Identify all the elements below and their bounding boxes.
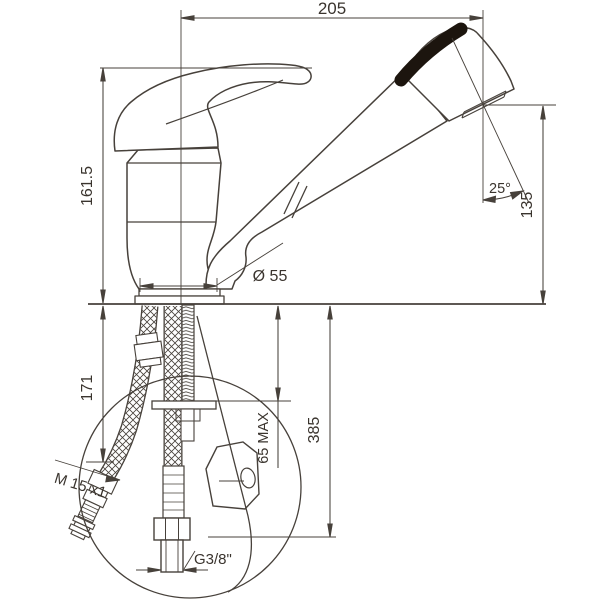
dim-hose-drop-label: 385 [306, 417, 323, 444]
faucet-body-group [114, 28, 514, 304]
dim-spray-height-label: 135 [519, 192, 536, 219]
dim-height-above-counter: 161.5 [79, 68, 105, 303]
dim-spout-reach: 205 [181, 0, 483, 20]
dim-under-counter-label: 171 [79, 375, 96, 402]
drawing-canvas: 205 161.5 171 135 [0, 0, 600, 600]
dim-base-diameter-label: Ø 55 [253, 268, 288, 285]
faucet-body [127, 148, 221, 289]
hose-weight [206, 442, 259, 509]
spout [206, 70, 447, 289]
g38-hex-nut [154, 518, 190, 572]
dim-connection-thread-label: G3/8" [194, 551, 232, 568]
dim-under-counter-depth: 171 [79, 306, 114, 462]
supply-hose-left [106, 306, 164, 477]
base-flange [135, 289, 224, 304]
dim-connection-thread: G3/8" [136, 551, 232, 572]
dim-spout-reach-label: 205 [318, 0, 346, 18]
mounting-stud [152, 305, 216, 441]
dim-counter-thickness-label: 65 MAX [256, 412, 272, 464]
dim-spray-outlet-height: 135 [519, 106, 545, 304]
dim-spray-angle-label: 25° [489, 181, 511, 197]
faucet-technical-drawing: 205 161.5 171 135 [0, 0, 600, 600]
dim-counter-thickness: 65 MAX [216, 306, 291, 468]
dim-height-label: 161.5 [79, 166, 96, 206]
